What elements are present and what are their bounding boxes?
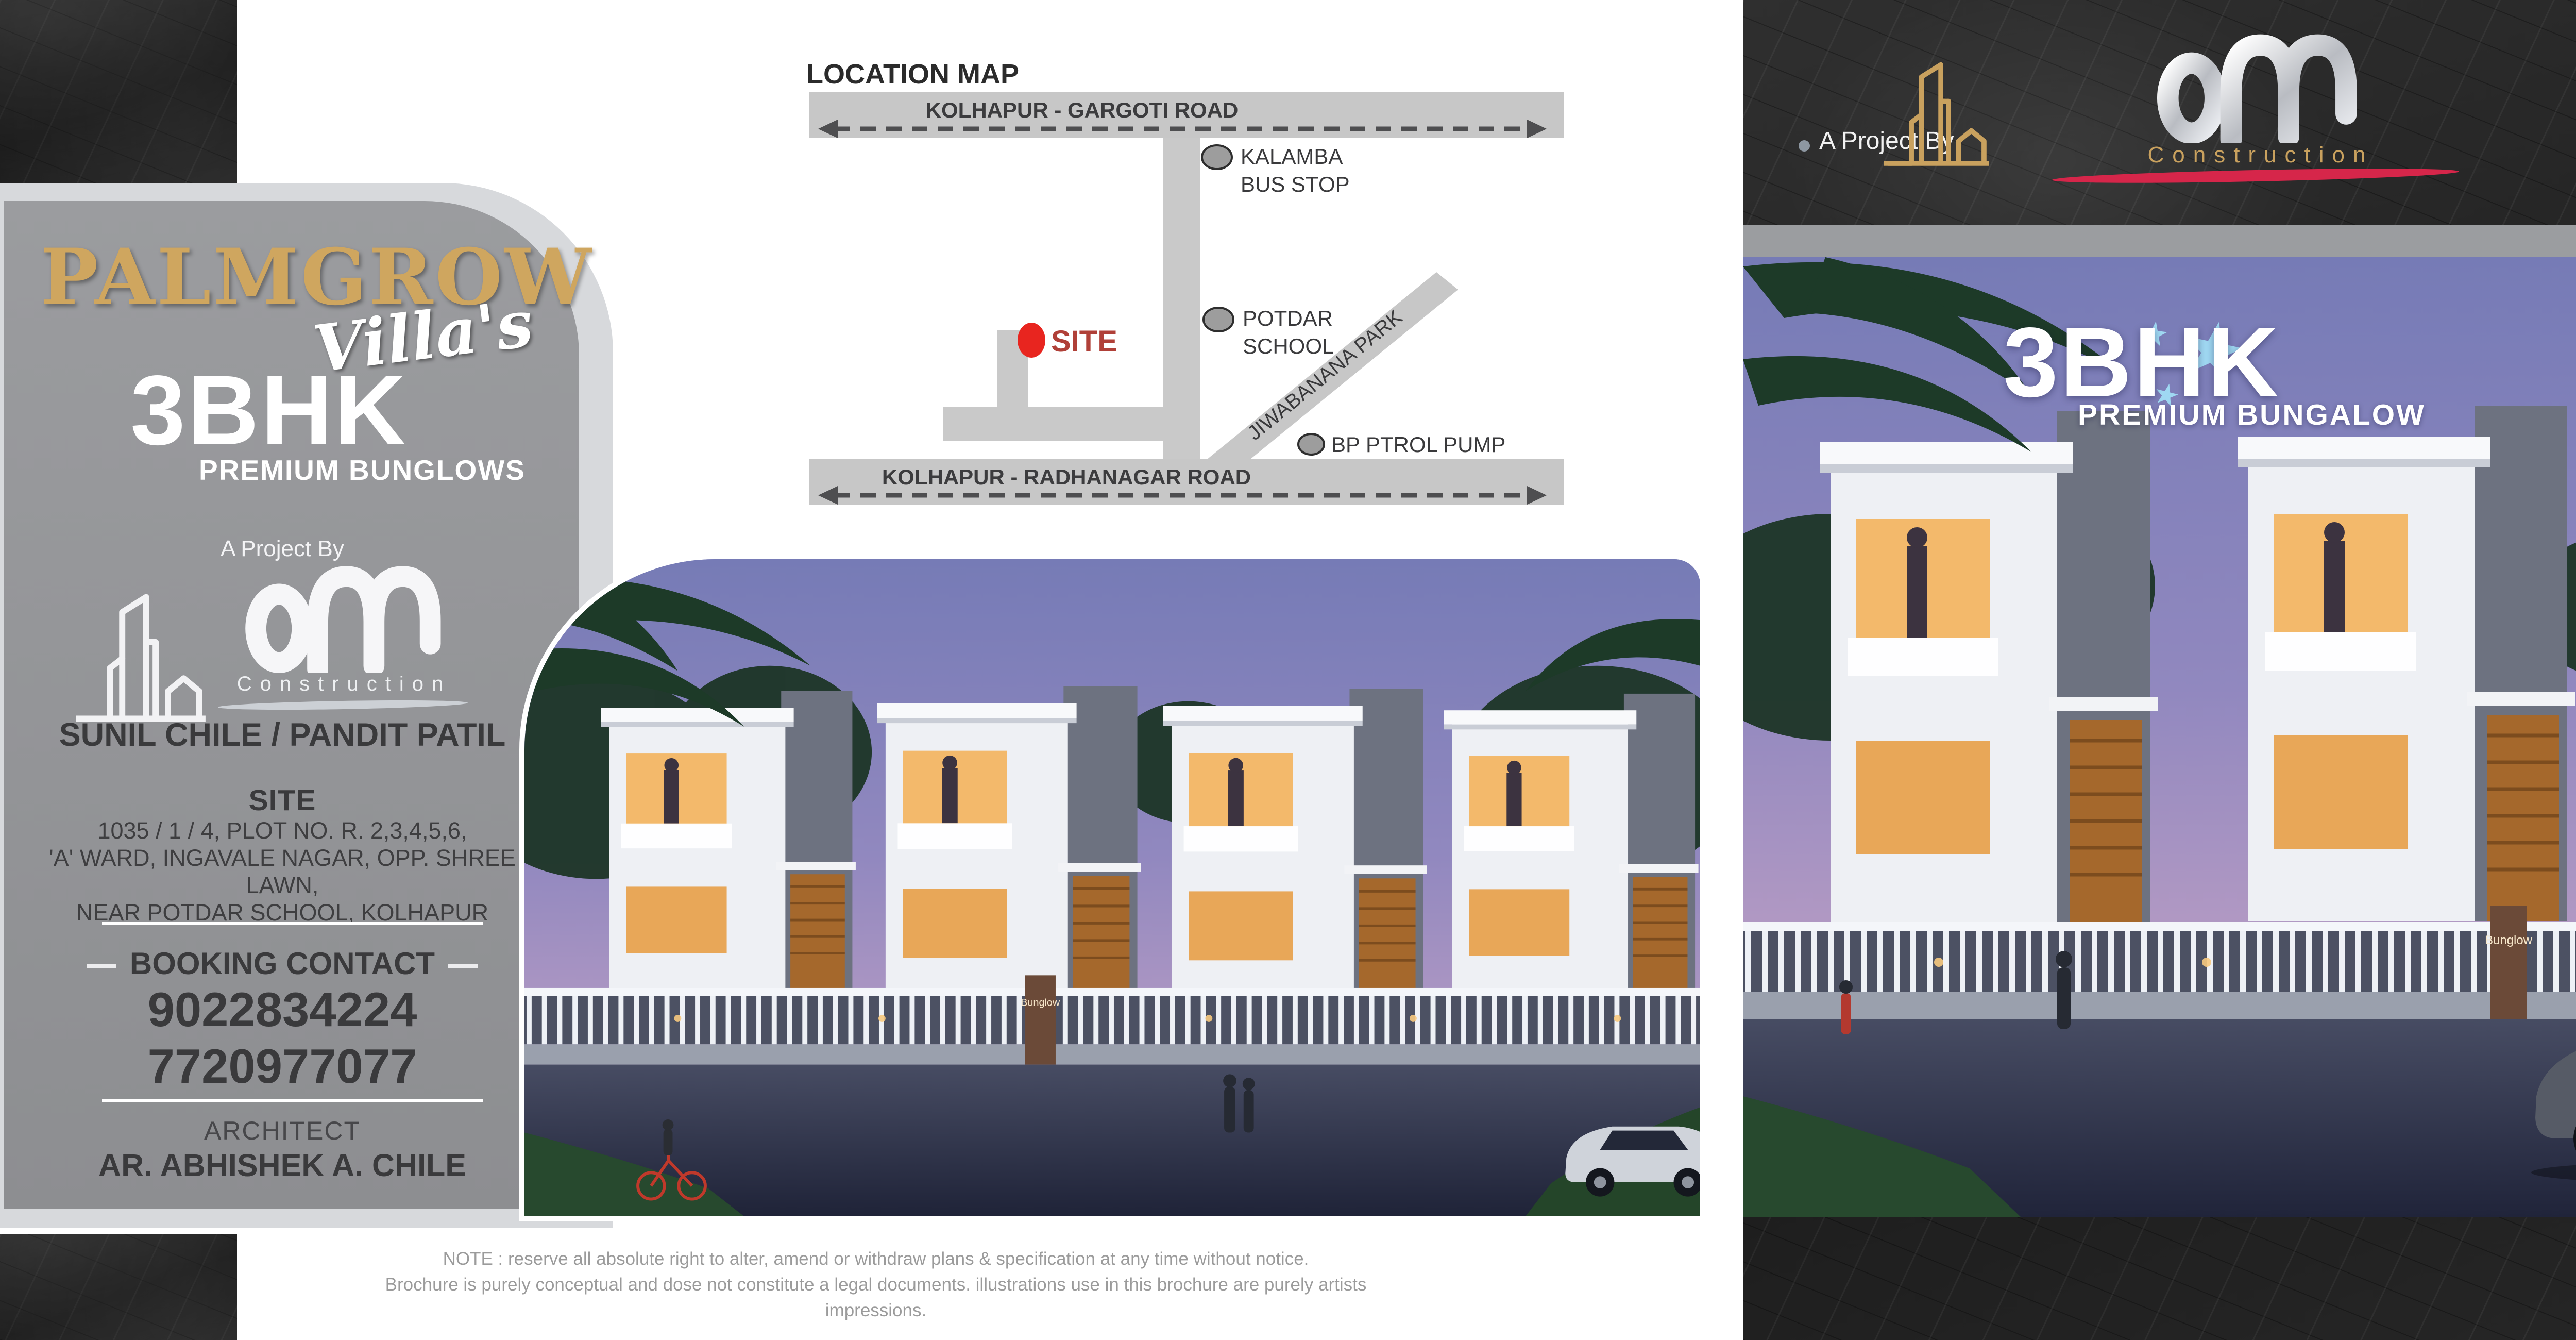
- left-bottom-texture-block: [0, 1234, 237, 1340]
- disclaimer-note: NOTE : reserve all absolute right to alt…: [361, 1246, 1391, 1324]
- project-by-bullet-icon: [1799, 140, 1810, 152]
- petrol-pump-label: BP PTROL PUMP: [1331, 432, 1505, 457]
- fence-top-rail: [524, 988, 1700, 996]
- middle-render-illustration: Bunglow: [524, 559, 1700, 1216]
- site-heading: SITE: [20, 783, 545, 817]
- compound-wall-base-right: [1743, 992, 2576, 1019]
- compound-fence-right: [1743, 931, 2576, 992]
- booking-contact-heading: BOOKING CONTACT: [20, 946, 545, 981]
- right-page: A Project By Construction PALMGROW Villa…: [1743, 0, 2576, 1340]
- builder-buildings-icon-gold: [1881, 30, 1992, 195]
- developers-names: SUNIL CHILE / PANDIT PATIL: [20, 716, 545, 753]
- kalamba-label-line2: BUS STOP: [1241, 172, 1350, 196]
- phone-number-primary: 9022834224: [20, 982, 545, 1037]
- gate-pillar-right: [2490, 906, 2527, 1019]
- booking-dash-left: [87, 964, 116, 968]
- builder-construction-label-right: Construction: [2062, 142, 2459, 168]
- brochure-spread: PALMGROW Villa's 3BHK PREMIUM BUNGLOWS A…: [0, 0, 2576, 1340]
- hero-building-render: Bunglow: [1743, 225, 2576, 1217]
- builder-logo-underline: [218, 699, 468, 711]
- radhanagar-road-label: KOLHAPUR - RADHANAGAR ROAD: [882, 465, 1251, 489]
- builder-logo-underline-red: [2052, 166, 2459, 186]
- fence-top-rail-right: [1743, 922, 2576, 931]
- gate-pillar-label: Bunglow: [1021, 997, 1060, 1008]
- gate-pillar: [1025, 975, 1055, 1064]
- disclaimer-line1: NOTE : reserve all absolute right to alt…: [361, 1246, 1391, 1272]
- architect-heading: ARCHITECT: [20, 1116, 545, 1146]
- hero-unit-subtitle: PREMIUM BUNGALOW: [2078, 398, 2426, 432]
- info-card-content: PALMGROW Villa's 3BHK PREMIUM BUNGLOWS A…: [4, 201, 579, 1209]
- kalamba-label-line1: KALAMBA: [1241, 144, 1343, 169]
- builder-om-logo-silver: [2060, 25, 2456, 143]
- card-divider-bottom: [102, 1099, 483, 1102]
- architect-name: AR. ABHISHEK A. CHILE: [20, 1147, 545, 1183]
- compound-fence: [524, 996, 1700, 1045]
- gargoti-road-label: KOLHAPUR - GARGOTI ROAD: [926, 98, 1239, 122]
- disclaimer-line2: Brochure is purely conceptual and dose n…: [361, 1272, 1391, 1324]
- booking-dash-right: [448, 964, 478, 968]
- middle-building-render: Bunglow: [519, 554, 1705, 1221]
- gate-pillar-label-right: Bunglow: [2485, 933, 2533, 947]
- potdar-school-marker: [1204, 308, 1233, 331]
- location-map-title: LOCATION MAP: [806, 59, 1019, 90]
- booking-contact-label: BOOKING CONTACT: [130, 946, 435, 981]
- site-marker-label: SITE: [1051, 325, 1117, 358]
- potdar-label-line2: SCHOOL: [1243, 334, 1334, 358]
- kalamba-bus-stop-marker: [1202, 145, 1232, 169]
- phone-number-secondary: 7720977077: [20, 1038, 545, 1094]
- site-marker: [1018, 323, 1045, 358]
- site-address: 1035 / 1 / 4, PLOT NO. R. 2,3,4,5,6, 'A'…: [20, 817, 545, 926]
- unit-type-heading: 3BHK: [130, 353, 408, 467]
- builder-construction-label: Construction: [221, 673, 468, 696]
- builder-buildings-icon: [71, 588, 210, 724]
- location-map: LOCATION MAP KOLHAPUR - GARGOTI ROAD KAL…: [793, 52, 1571, 562]
- site-address-line2: 'A' WARD, INGAVALE NAGAR, OPP. SHREE LAW…: [20, 844, 545, 899]
- map-vertical-road: [1163, 138, 1200, 459]
- left-top-texture-block: [0, 0, 237, 184]
- compound-wall-base: [524, 1044, 1700, 1064]
- card-divider-top: [102, 922, 483, 925]
- potdar-label-line1: POTDAR: [1243, 306, 1333, 330]
- petrol-pump-marker: [1298, 434, 1324, 455]
- site-branch-road: [943, 407, 1163, 441]
- builder-om-logo: [223, 557, 465, 673]
- site-address-line1: 1035 / 1 / 4, PLOT NO. R. 2,3,4,5,6,: [20, 817, 545, 844]
- render-top-band: [1743, 225, 2576, 257]
- unit-type-subheading: PREMIUM BUNGLOWS: [199, 454, 526, 487]
